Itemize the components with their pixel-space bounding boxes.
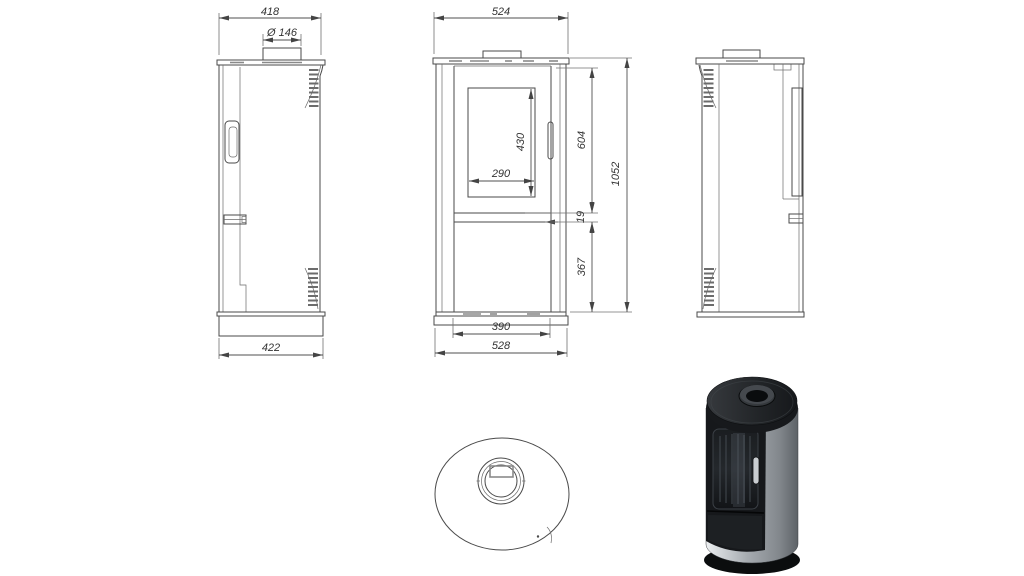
product-render bbox=[704, 377, 800, 574]
dim-label-19: 19 bbox=[575, 211, 587, 223]
stove-body-right bbox=[699, 64, 803, 312]
dim-glass-height: 430 bbox=[515, 89, 531, 196]
dim-label-524: 524 bbox=[492, 6, 510, 18]
right-side-view bbox=[696, 50, 804, 317]
top-view-outline bbox=[435, 438, 569, 550]
flue-stub-right bbox=[723, 50, 760, 58]
base-band-side bbox=[217, 312, 325, 316]
dim-label-290: 290 bbox=[491, 168, 511, 180]
render-flue-collar bbox=[739, 385, 775, 407]
flue-stub-side bbox=[263, 48, 301, 60]
dim-label-1052: 1052 bbox=[610, 162, 622, 186]
dim-lower-height: 367 bbox=[576, 222, 592, 312]
door-latch-side bbox=[224, 215, 246, 224]
front-view: 524 430 290 bbox=[433, 6, 632, 357]
ember-strip bbox=[454, 213, 558, 222]
top-view bbox=[435, 438, 569, 550]
dim-label-390: 390 bbox=[492, 321, 511, 333]
vent-slots-top-rear bbox=[309, 70, 319, 106]
vent-slots-top-right bbox=[704, 70, 714, 106]
flue-stub-front bbox=[483, 51, 521, 58]
vent-slots-bottom-rear bbox=[308, 269, 318, 305]
dim-upper-height: 604 bbox=[525, 68, 598, 213]
base-band-right bbox=[697, 312, 804, 317]
door-handle-side bbox=[225, 121, 239, 163]
dim-flue-diameter: Ø 146 bbox=[263, 27, 301, 46]
drawing-sheet: 418 Ø 146 bbox=[0, 0, 1024, 576]
dim-inner-base-width: 390 bbox=[453, 318, 550, 338]
left-side-view: 418 Ø 146 bbox=[217, 6, 325, 359]
dim-label-528: 528 bbox=[492, 340, 511, 352]
dim-left-base-width: 422 bbox=[219, 338, 323, 359]
base-band-front bbox=[436, 312, 566, 316]
plinth-side bbox=[219, 316, 323, 336]
stove-body-side bbox=[219, 65, 323, 312]
technical-drawing-svg: 418 Ø 146 bbox=[0, 0, 1024, 576]
dim-glass-width: 290 bbox=[469, 168, 534, 181]
dim-label-430: 430 bbox=[515, 132, 527, 151]
dim-label-604: 604 bbox=[576, 131, 588, 149]
render-door-glass bbox=[713, 429, 758, 509]
door-latch-right bbox=[789, 214, 803, 223]
dim-label-367: 367 bbox=[576, 257, 588, 276]
dim-label-418: 418 bbox=[261, 6, 280, 18]
render-door-handle bbox=[753, 457, 759, 484]
stove-body-front bbox=[436, 64, 566, 312]
dim-ember-strip: 19 bbox=[545, 202, 598, 233]
dim-label-422: 422 bbox=[262, 342, 280, 354]
flue-outlet-top bbox=[477, 458, 526, 504]
door-edge-right bbox=[792, 88, 802, 196]
dim-front-top-width: 524 bbox=[434, 6, 568, 54]
dim-label-146: Ø 146 bbox=[266, 27, 298, 39]
vent-slots-bottom-right bbox=[704, 269, 714, 305]
